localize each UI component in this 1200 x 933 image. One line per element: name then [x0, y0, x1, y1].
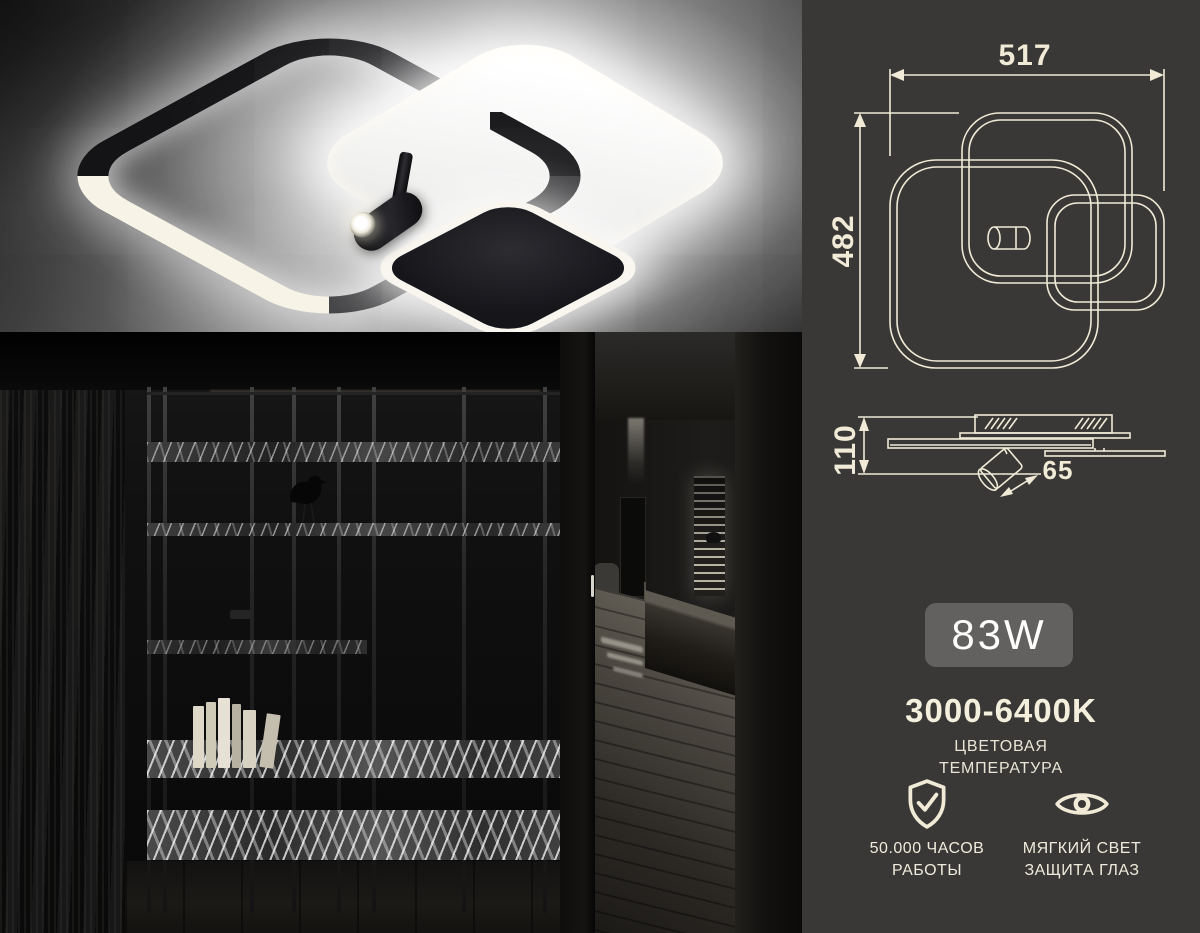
ceiling-soffit: [0, 332, 570, 390]
shield-check-icon: [847, 778, 1007, 834]
feature-lifespan-text: 50.000 ЧАСОВ РАБОТЫ: [847, 838, 1007, 881]
spot-dimension-label: 65: [1043, 455, 1074, 485]
feature-soft-light: МЯГКИЙ СВЕТ ЗАЩИТА ГЛАЗ: [1002, 778, 1162, 881]
marble-shelf: [147, 442, 563, 462]
depth-dimension-label: 110: [829, 424, 862, 475]
power-badge-label: 83W: [951, 611, 1046, 659]
marble-shelf: [147, 523, 563, 536]
wood-wall: [0, 332, 125, 933]
hatch-marks: [985, 418, 1107, 429]
closet-floor: [125, 861, 566, 933]
color-temp-value: 3000-6400K: [802, 692, 1200, 730]
spot-cylinder-sideview: [975, 447, 1023, 493]
corridor: [560, 332, 802, 933]
spot-dimension-line: [1011, 481, 1027, 491]
fixture-side-profile: [888, 415, 1165, 456]
color-temp-caption-line1: ЦВЕТОВАЯ: [802, 736, 1200, 758]
floor-light-patch: [607, 652, 643, 666]
corridor-left-wall-edge: [560, 332, 595, 933]
corridor-glass-door: [620, 497, 646, 597]
spec-panel: 517 482: [802, 0, 1200, 933]
spotlight-lens: [350, 212, 376, 238]
top-view-diagram: 517 482: [825, 23, 1180, 378]
color-temp-caption-line2: ТЕМПЕРАТУРА: [802, 758, 1200, 780]
room-interior: [0, 332, 802, 933]
marble-shelf: [147, 810, 563, 860]
corridor-ceiling-light: [628, 418, 644, 484]
height-dimension: [854, 113, 959, 368]
books: [193, 698, 281, 768]
wall-socket: [230, 610, 252, 619]
side-view-diagram: 110 65: [828, 398, 1183, 516]
power-badge: 83W: [925, 603, 1073, 667]
product-card: 517 482: [0, 0, 1200, 933]
product-photo: [0, 0, 802, 933]
eye-icon: [1002, 778, 1162, 834]
width-dimension: [890, 69, 1164, 191]
height-dimension-label: 482: [827, 214, 860, 267]
marble-shelf: [147, 640, 367, 654]
feature-soft-light-text: МЯГКИЙ СВЕТ ЗАЩИТА ГЛАЗ: [1002, 838, 1162, 881]
spot-cylinder-topview: [988, 227, 1030, 249]
window-object: [706, 532, 721, 543]
bird-figurine: [283, 468, 329, 526]
feature-lifespan: 50.000 ЧАСОВ РАБОТЫ: [847, 778, 1007, 881]
small-square-outline: [1047, 195, 1164, 310]
floor-light-patch: [613, 666, 643, 677]
door-handle: [591, 575, 594, 597]
width-dimension-label: 517: [998, 39, 1051, 72]
corridor-right-wall: [735, 332, 802, 933]
floor-light-patch: [601, 636, 643, 652]
color-temp-caption: ЦВЕТОВАЯ ТЕМПЕРАТУРА: [802, 736, 1200, 779]
shelf-rail: [147, 392, 563, 395]
